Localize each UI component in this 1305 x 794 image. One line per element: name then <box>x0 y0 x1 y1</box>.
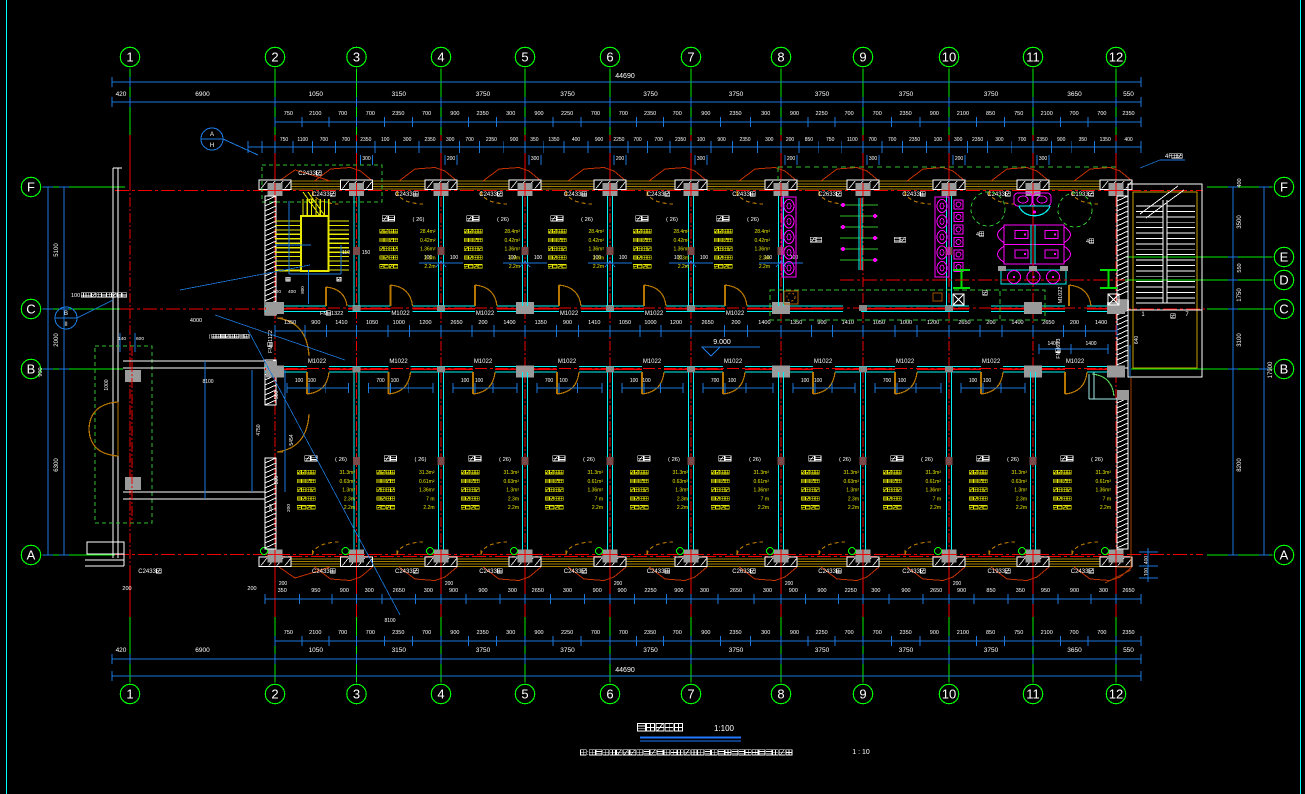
svg-text:1:100: 1:100 <box>714 724 735 733</box>
svg-text:200: 200 <box>445 581 454 587</box>
svg-text:C2433: C2433 <box>312 569 330 575</box>
svg-text:2100: 2100 <box>309 111 321 117</box>
svg-text:31.3m²: 31.3m² <box>503 470 519 476</box>
svg-text:0.42m²: 0.42m² <box>420 238 436 244</box>
svg-text:2250: 2250 <box>815 111 827 117</box>
svg-text:M1022: M1022 <box>474 359 493 365</box>
svg-text:3750: 3750 <box>815 91 830 98</box>
svg-text:C2433: C2433 <box>987 192 1005 198</box>
svg-text:700: 700 <box>845 630 854 636</box>
svg-text:3750: 3750 <box>729 91 744 98</box>
svg-text:12: 12 <box>1109 50 1123 65</box>
svg-text:100: 100 <box>381 137 390 143</box>
svg-text:300: 300 <box>531 156 540 162</box>
svg-text:640: 640 <box>1134 336 1140 345</box>
svg-text:9: 9 <box>859 50 866 65</box>
svg-text:C1933: C1933 <box>988 569 1006 575</box>
svg-text:3750: 3750 <box>643 647 658 654</box>
svg-text:( 26): ( 26) <box>839 457 851 463</box>
svg-text:900: 900 <box>38 367 44 376</box>
svg-text:28.4m²: 28.4m² <box>673 229 689 235</box>
svg-text:300: 300 <box>1099 588 1108 594</box>
svg-text:2.3m: 2.3m <box>759 255 770 261</box>
svg-text:8: 8 <box>777 687 784 702</box>
svg-text:1.36m²: 1.36m² <box>753 488 769 494</box>
svg-text:100: 100 <box>700 255 709 261</box>
svg-text:7 m: 7 m <box>426 496 434 502</box>
svg-text:3500: 3500 <box>1237 215 1243 229</box>
svg-text:2.2m: 2.2m <box>509 264 520 270</box>
svg-text:1350: 1350 <box>790 320 802 326</box>
svg-text:700: 700 <box>1070 630 1079 636</box>
svg-text:700: 700 <box>633 137 642 143</box>
svg-text:6: 6 <box>606 50 613 65</box>
svg-text:500: 500 <box>274 391 280 400</box>
svg-text:2650: 2650 <box>532 588 544 594</box>
svg-text:300: 300 <box>995 137 1004 143</box>
svg-text:700: 700 <box>422 630 431 636</box>
svg-text:3750: 3750 <box>899 647 914 654</box>
svg-text:140: 140 <box>118 336 126 342</box>
svg-text:1350: 1350 <box>548 137 559 143</box>
svg-text::: : <box>587 748 589 757</box>
svg-text:10: 10 <box>942 687 956 702</box>
svg-text:M1022: M1022 <box>1058 287 1064 304</box>
svg-text:100: 100 <box>630 378 639 384</box>
svg-text:10: 10 <box>942 50 956 65</box>
svg-text:0.63m²: 0.63m² <box>1011 479 1027 485</box>
svg-text:3650: 3650 <box>1067 91 1082 98</box>
svg-text:A: A <box>27 548 36 563</box>
svg-text:7: 7 <box>687 687 694 702</box>
svg-text:100: 100 <box>475 378 484 384</box>
svg-text:4: 4 <box>437 50 444 65</box>
svg-text:900: 900 <box>717 137 726 143</box>
svg-text:350: 350 <box>1016 588 1025 594</box>
svg-text:200: 200 <box>786 137 795 143</box>
svg-text:2.3m: 2.3m <box>1016 496 1027 502</box>
svg-text:100: 100 <box>898 378 907 384</box>
svg-text:4: 4 <box>976 232 979 238</box>
svg-text:1200: 1200 <box>670 320 682 326</box>
svg-text:900: 900 <box>563 320 572 326</box>
svg-text:400: 400 <box>1144 556 1150 565</box>
svg-text:2350: 2350 <box>644 111 656 117</box>
svg-text:750: 750 <box>280 137 289 143</box>
svg-text:750: 750 <box>826 137 835 143</box>
svg-text:100: 100 <box>534 255 543 261</box>
svg-text:200: 200 <box>279 581 288 587</box>
svg-text:1350: 1350 <box>535 320 547 326</box>
svg-text:M1022: M1022 <box>645 311 664 317</box>
svg-text:B: B <box>64 311 68 317</box>
svg-text:1400: 1400 <box>1047 341 1058 347</box>
svg-text:44690: 44690 <box>615 73 635 80</box>
svg-text:1350: 1350 <box>1100 137 1111 143</box>
svg-text:850: 850 <box>986 111 995 117</box>
svg-text:M1022: M1022 <box>896 359 915 365</box>
svg-text:31.3m²: 31.3m² <box>672 470 688 476</box>
svg-text:2.3m: 2.3m <box>678 255 689 261</box>
svg-text:1.3m²: 1.3m² <box>342 488 355 494</box>
svg-text:200: 200 <box>268 504 274 512</box>
svg-text:C2433: C2433 <box>647 569 665 575</box>
svg-text:( 26): ( 26) <box>583 457 595 463</box>
svg-text:2350: 2350 <box>1122 111 1134 117</box>
svg-text:( 26): ( 26) <box>749 457 761 463</box>
svg-text:100: 100 <box>461 378 470 384</box>
svg-text:2: 2 <box>271 687 278 702</box>
svg-text:2650: 2650 <box>958 320 970 326</box>
svg-text:300: 300 <box>761 630 770 636</box>
svg-text:100: 100 <box>983 378 992 384</box>
svg-text:2.2m: 2.2m <box>1100 505 1111 511</box>
svg-text:600: 600 <box>136 336 144 342</box>
svg-text:2.2m: 2.2m <box>758 505 769 511</box>
svg-text:2250: 2250 <box>644 588 656 594</box>
svg-text:2350: 2350 <box>972 137 983 143</box>
svg-text:( 26): ( 26) <box>921 457 933 463</box>
svg-text:700: 700 <box>673 111 682 117</box>
svg-text:300: 300 <box>869 156 878 162</box>
svg-text:3750: 3750 <box>560 91 575 98</box>
svg-text:0.42m²: 0.42m² <box>754 238 770 244</box>
svg-text:( 26): ( 26) <box>666 217 678 223</box>
svg-text:( 26): ( 26) <box>581 217 593 223</box>
svg-text:2350: 2350 <box>909 137 920 143</box>
svg-text:F: F <box>1280 180 1288 195</box>
svg-text:700: 700 <box>619 630 628 636</box>
svg-text:C2433: C2433 <box>902 192 920 198</box>
svg-text:3150: 3150 <box>392 647 407 654</box>
svg-text:0.63m²: 0.63m² <box>672 479 688 485</box>
svg-text:2350: 2350 <box>739 137 750 143</box>
svg-text:300: 300 <box>700 588 709 594</box>
svg-text:1100: 1100 <box>297 137 308 143</box>
svg-text:44690: 44690 <box>615 667 635 674</box>
svg-text:400: 400 <box>1237 178 1243 187</box>
svg-text:3750: 3750 <box>560 647 575 654</box>
svg-text:3650: 3650 <box>1067 647 1082 654</box>
svg-text:1.36m²: 1.36m² <box>419 488 435 494</box>
svg-text:9.000: 9.000 <box>713 339 731 346</box>
svg-text:900: 900 <box>595 137 604 143</box>
svg-text:C2433: C2433 <box>1071 569 1089 575</box>
svg-text:2.3m: 2.3m <box>508 496 519 502</box>
svg-text:750: 750 <box>1014 630 1023 636</box>
svg-text:12: 12 <box>1109 687 1123 702</box>
svg-text:300: 300 <box>403 137 412 143</box>
svg-text:200: 200 <box>1070 320 1079 326</box>
svg-text:2250: 2250 <box>815 630 827 636</box>
svg-text:2100: 2100 <box>309 630 321 636</box>
svg-text:1400: 1400 <box>1011 320 1023 326</box>
svg-text:100: 100 <box>295 378 304 384</box>
svg-text:1750: 1750 <box>1237 288 1243 302</box>
svg-text:31.3m²: 31.3m² <box>587 470 603 476</box>
svg-text:3750: 3750 <box>815 647 830 654</box>
svg-text:200: 200 <box>953 581 962 587</box>
svg-text:1.36m²: 1.36m² <box>925 488 941 494</box>
svg-text:700: 700 <box>1018 137 1027 143</box>
svg-text:2.2m: 2.2m <box>424 264 435 270</box>
svg-text:900: 900 <box>311 320 320 326</box>
svg-text:700: 700 <box>711 378 720 384</box>
svg-text:400: 400 <box>572 137 581 143</box>
svg-text:1: 1 <box>126 50 133 65</box>
svg-text:700: 700 <box>873 630 882 636</box>
svg-text:3750: 3750 <box>643 91 658 98</box>
svg-text:2350: 2350 <box>1037 137 1048 143</box>
svg-text:900: 900 <box>478 588 487 594</box>
svg-text:1.3m²: 1.3m² <box>675 488 688 494</box>
svg-text:7 m: 7 m <box>933 496 941 502</box>
svg-text:900: 900 <box>789 588 798 594</box>
svg-text:1.36m²: 1.36m² <box>588 247 604 253</box>
svg-text:200: 200 <box>478 320 487 326</box>
svg-text:8200: 8200 <box>1237 458 1243 472</box>
svg-text:6: 6 <box>606 687 613 702</box>
svg-text:200: 200 <box>616 156 625 162</box>
svg-text:900: 900 <box>534 111 543 117</box>
svg-text:8100: 8100 <box>202 379 213 385</box>
svg-text:A: A <box>210 132 214 138</box>
svg-text:200: 200 <box>955 156 964 162</box>
svg-text:300: 300 <box>765 137 774 143</box>
svg-text:2.2m: 2.2m <box>344 505 355 511</box>
svg-text:550: 550 <box>1123 91 1134 98</box>
svg-text:900: 900 <box>1070 588 1079 594</box>
svg-text:400: 400 <box>1124 137 1133 143</box>
svg-text:750: 750 <box>284 111 293 117</box>
svg-text:100: 100 <box>969 378 978 384</box>
svg-text:700: 700 <box>591 630 600 636</box>
svg-text:31.3m²: 31.3m² <box>1011 470 1027 476</box>
svg-text:2: 2 <box>271 50 278 65</box>
svg-text:0.42m²: 0.42m² <box>504 238 520 244</box>
svg-text:2650: 2650 <box>393 588 405 594</box>
svg-text:( 26): ( 26) <box>1091 457 1103 463</box>
svg-text:700: 700 <box>868 137 877 143</box>
svg-text:( 26): ( 26) <box>747 217 759 223</box>
svg-text:5100: 5100 <box>54 243 60 257</box>
svg-text:2350: 2350 <box>1122 630 1134 636</box>
svg-text:0.42m²: 0.42m² <box>673 238 689 244</box>
svg-text:M1022: M1022 <box>558 359 577 365</box>
svg-text:28.4m²: 28.4m² <box>588 229 604 235</box>
svg-text:31.3m²: 31.3m² <box>339 470 355 476</box>
svg-text:2350: 2350 <box>899 630 911 636</box>
svg-text:0.61m²: 0.61m² <box>587 479 603 485</box>
svg-text:700: 700 <box>1097 630 1106 636</box>
svg-text:900: 900 <box>930 630 939 636</box>
svg-text:700: 700 <box>1070 111 1079 117</box>
svg-text:2350: 2350 <box>899 111 911 117</box>
svg-text:6900: 6900 <box>195 91 210 98</box>
svg-text:900: 900 <box>817 588 826 594</box>
svg-text:700: 700 <box>320 137 329 143</box>
svg-text:2.3m: 2.3m <box>677 496 688 502</box>
svg-text:700: 700 <box>422 111 431 117</box>
svg-text:2350: 2350 <box>424 137 435 143</box>
svg-text:1050: 1050 <box>619 320 631 326</box>
svg-text:2.3m: 2.3m <box>593 255 604 261</box>
svg-text:C2433: C2433 <box>395 569 413 575</box>
svg-text:700: 700 <box>338 630 347 636</box>
svg-text:300: 300 <box>954 137 963 143</box>
svg-text:100: 100 <box>814 378 823 384</box>
svg-text:800: 800 <box>300 286 305 294</box>
svg-text:900: 900 <box>674 588 683 594</box>
svg-text:600: 600 <box>273 289 281 295</box>
svg-text:2350: 2350 <box>729 630 741 636</box>
svg-text:550: 550 <box>1237 263 1243 272</box>
svg-text:1100: 1100 <box>847 137 858 143</box>
svg-text:100: 100 <box>391 378 400 384</box>
svg-text:950: 950 <box>1041 588 1050 594</box>
svg-text:3750: 3750 <box>984 91 999 98</box>
svg-text:3: 3 <box>353 50 360 65</box>
svg-text:900: 900 <box>510 137 519 143</box>
svg-text:900: 900 <box>701 630 710 636</box>
svg-text:2.2m: 2.2m <box>930 505 941 511</box>
svg-text:100: 100 <box>450 255 459 261</box>
svg-text:950: 950 <box>311 588 320 594</box>
svg-text:700: 700 <box>376 378 385 384</box>
svg-text:700: 700 <box>845 111 854 117</box>
svg-text:1322: 1322 <box>331 311 343 317</box>
svg-text:1.36m²: 1.36m² <box>587 488 603 494</box>
svg-text:750: 750 <box>284 630 293 636</box>
svg-text:700: 700 <box>366 630 375 636</box>
svg-text:C2433: C2433 <box>395 192 413 198</box>
svg-text:900: 900 <box>817 320 826 326</box>
svg-text:200: 200 <box>247 586 256 592</box>
svg-text:300: 300 <box>424 588 433 594</box>
svg-text:700: 700 <box>366 111 375 117</box>
svg-text:2650: 2650 <box>1122 588 1134 594</box>
svg-text:2650: 2650 <box>450 320 462 326</box>
svg-text:0.63m²: 0.63m² <box>843 479 859 485</box>
svg-text:900: 900 <box>701 111 710 117</box>
svg-text:C2633: C2633 <box>732 569 750 575</box>
svg-text:C2433: C2433 <box>138 569 156 575</box>
svg-text:( 26): ( 26) <box>415 457 427 463</box>
svg-text:4: 4 <box>1086 239 1089 245</box>
svg-text:900: 900 <box>450 630 459 636</box>
svg-text:3750: 3750 <box>476 91 491 98</box>
svg-text:7 m: 7 m <box>761 496 769 502</box>
svg-text:2650: 2650 <box>730 588 742 594</box>
svg-text:0.63m²: 0.63m² <box>503 479 519 485</box>
svg-text:900: 900 <box>450 111 459 117</box>
svg-text:C: C <box>26 302 35 317</box>
svg-text:350: 350 <box>1079 137 1088 143</box>
svg-text:2.2m: 2.2m <box>593 264 604 270</box>
svg-text:31.3m²: 31.3m² <box>843 470 859 476</box>
svg-text:M1022: M1022 <box>814 359 833 365</box>
svg-text:7 m: 7 m <box>595 496 603 502</box>
svg-text:2.3m: 2.3m <box>424 255 435 261</box>
svg-text:A: A <box>1280 548 1289 563</box>
svg-text:2100: 2100 <box>957 111 969 117</box>
svg-text:200: 200 <box>122 586 131 592</box>
svg-text:300: 300 <box>761 111 770 117</box>
svg-text:0.61m²: 0.61m² <box>753 479 769 485</box>
svg-text:2350: 2350 <box>729 111 741 117</box>
svg-text:9: 9 <box>859 687 866 702</box>
svg-text:5: 5 <box>521 50 528 65</box>
svg-text:1400: 1400 <box>1085 341 1096 347</box>
svg-text:2.2m: 2.2m <box>677 505 688 511</box>
svg-text:1.3m²: 1.3m² <box>506 488 519 494</box>
svg-text:420: 420 <box>116 91 127 98</box>
svg-text:3: 3 <box>353 687 360 702</box>
svg-text:2250: 2250 <box>613 137 624 143</box>
svg-text:200: 200 <box>785 581 794 587</box>
svg-text:II: II <box>64 322 68 328</box>
svg-text:350: 350 <box>278 588 287 594</box>
svg-text:1 : 10: 1 : 10 <box>852 749 870 756</box>
svg-text:1400: 1400 <box>758 320 770 326</box>
svg-text:1: 1 <box>126 687 133 702</box>
svg-text:C2433: C2433 <box>647 192 665 198</box>
svg-text:700: 700 <box>654 137 663 143</box>
svg-text:28.4m²: 28.4m² <box>504 229 520 235</box>
svg-text:300: 300 <box>563 588 572 594</box>
svg-text:31.3m²: 31.3m² <box>1095 470 1111 476</box>
svg-text:C2433: C2433 <box>902 569 920 575</box>
svg-text:850: 850 <box>986 588 995 594</box>
svg-text:200: 200 <box>614 581 623 587</box>
svg-text:M1022: M1022 <box>308 359 327 365</box>
svg-text:( 26): ( 26) <box>668 457 680 463</box>
svg-text:2250: 2250 <box>561 630 573 636</box>
svg-text:11: 11 <box>1026 687 1040 702</box>
svg-text:900: 900 <box>901 588 910 594</box>
svg-text:C2433: C2433 <box>479 192 497 198</box>
svg-text:M1022: M1022 <box>389 359 408 365</box>
svg-text:2250: 2250 <box>561 111 573 117</box>
svg-text:6900: 6900 <box>195 647 210 654</box>
svg-text:110: 110 <box>342 250 350 256</box>
svg-text:300: 300 <box>446 137 455 143</box>
svg-text:3100: 3100 <box>1237 333 1243 347</box>
svg-text:850: 850 <box>986 630 995 636</box>
svg-text:100: 100 <box>1144 568 1150 577</box>
svg-text:300: 300 <box>274 476 280 485</box>
svg-text:2350: 2350 <box>476 630 488 636</box>
svg-text:2.2m: 2.2m <box>759 264 770 270</box>
svg-text:300: 300 <box>365 588 374 594</box>
svg-text:M1022: M1022 <box>391 311 410 317</box>
svg-text:900: 900 <box>790 111 799 117</box>
svg-text:2000: 2000 <box>54 333 60 347</box>
svg-text:2100: 2100 <box>1041 111 1053 117</box>
svg-text:0.63m²: 0.63m² <box>339 479 355 485</box>
svg-text:0.61m²: 0.61m² <box>1095 479 1111 485</box>
svg-text:2350: 2350 <box>476 111 488 117</box>
svg-text:0.61m²: 0.61m² <box>419 479 435 485</box>
svg-text:100: 100 <box>801 378 810 384</box>
svg-text:2350: 2350 <box>392 111 404 117</box>
svg-text:300: 300 <box>362 156 371 162</box>
svg-text:C2433: C2433 <box>312 192 330 198</box>
svg-text:3750: 3750 <box>984 647 999 654</box>
svg-text:6300: 6300 <box>54 458 60 472</box>
svg-text:200: 200 <box>447 156 456 162</box>
svg-text:F: F <box>27 180 35 195</box>
